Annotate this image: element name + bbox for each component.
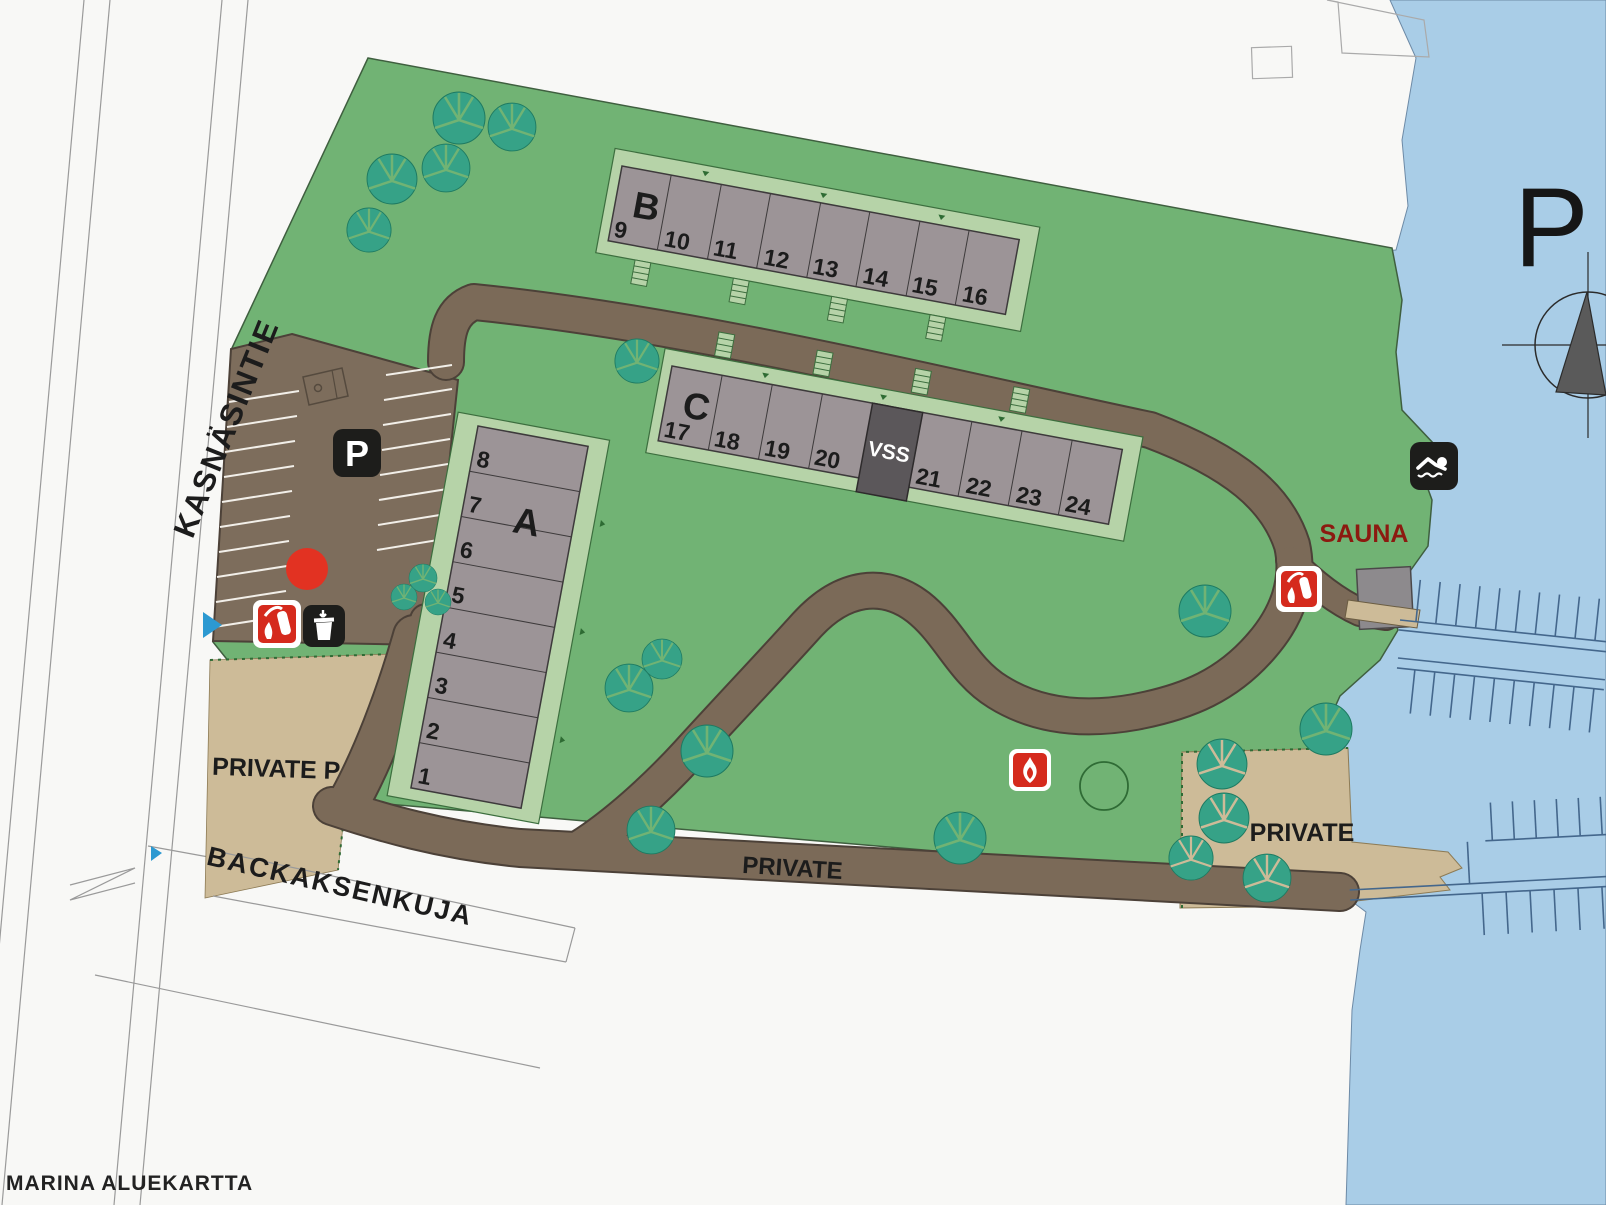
swimming-icon [1410,442,1458,490]
unit-number: 23 [1014,481,1044,511]
unit-number: 18 [712,425,742,455]
unit-number: 22 [964,472,994,502]
unit-number: 13 [811,253,841,283]
unit-number: 10 [662,225,692,255]
unit-number: 12 [762,244,792,274]
parking-sign-letter: P [345,433,369,474]
unit-number: 17 [662,416,692,446]
private-p-label: PRIVATE P [212,753,341,785]
unit-number: 20 [813,444,843,474]
unit-number: 24 [1063,490,1093,520]
unit-number: 16 [960,280,990,310]
campfire-icon [1009,749,1051,791]
fire-extinguisher-icon [1276,566,1322,612]
unit-number: 19 [762,434,792,464]
private-area-label: PRIVATE [1250,819,1355,847]
unit-number: 15 [910,271,940,301]
survey-mark-lines [70,868,135,900]
marina-area-map: B 9 10 11 12 13 14 15 16 C 17 18 [0,0,1606,1205]
north-letter: P [1514,165,1589,290]
footer-title: MARINA ALUEKARTTA [6,1172,253,1195]
fire-extinguisher-icon [253,600,301,648]
parking-icon: P [333,429,381,477]
unit-number: 21 [914,463,944,493]
unit-number: 11 [711,234,740,264]
location-dot [286,548,328,590]
sauna-label: SAUNA [1320,520,1409,548]
waste-bin-icon [303,605,345,647]
unit-number: 14 [861,262,891,292]
